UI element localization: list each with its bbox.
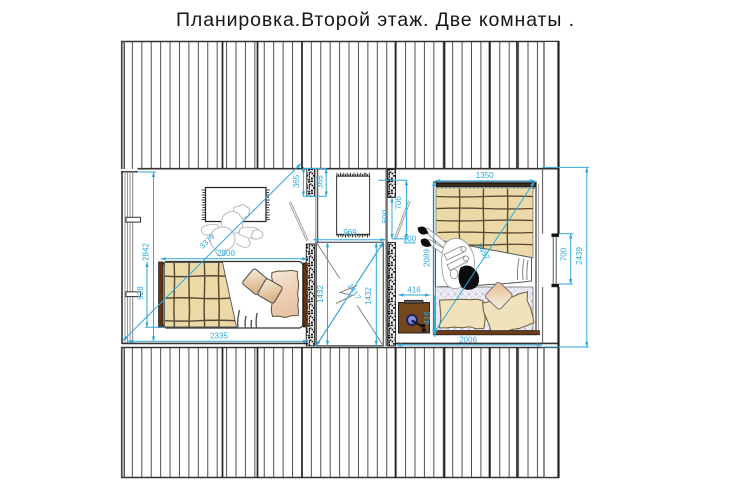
svg-text:928: 928 [136, 286, 145, 300]
svg-text:2089: 2089 [423, 249, 432, 267]
svg-text:100: 100 [403, 235, 417, 244]
svg-text:2842: 2842 [141, 243, 150, 261]
svg-text:2335: 2335 [210, 332, 228, 341]
svg-text:2439: 2439 [575, 247, 584, 265]
svg-text:416: 416 [407, 286, 421, 295]
svg-text:416: 416 [423, 311, 432, 325]
svg-text:1350: 1350 [476, 171, 494, 180]
svg-text:2800: 2800 [217, 249, 235, 258]
svg-text:600: 600 [381, 209, 390, 223]
svg-text:1432: 1432 [364, 287, 373, 305]
svg-text:969: 969 [343, 228, 357, 237]
svg-text:365: 365 [292, 174, 301, 188]
svg-text:Планировка.Второй этаж. Две ко: Планировка.Второй этаж. Две комнаты . [176, 9, 575, 31]
svg-text:706: 706 [394, 196, 403, 210]
svg-text:2006: 2006 [459, 336, 477, 345]
svg-text:700: 700 [560, 247, 569, 261]
svg-text:365: 365 [316, 175, 325, 189]
svg-text:1432: 1432 [316, 285, 325, 303]
